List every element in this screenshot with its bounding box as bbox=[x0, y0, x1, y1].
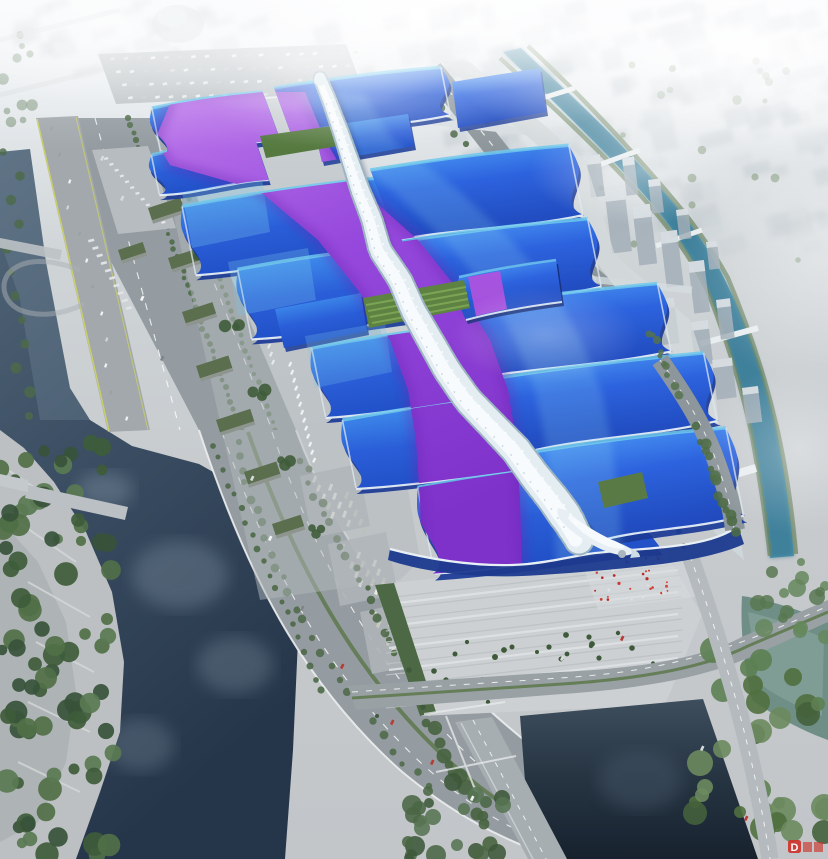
svg-text:D: D bbox=[791, 842, 799, 854]
